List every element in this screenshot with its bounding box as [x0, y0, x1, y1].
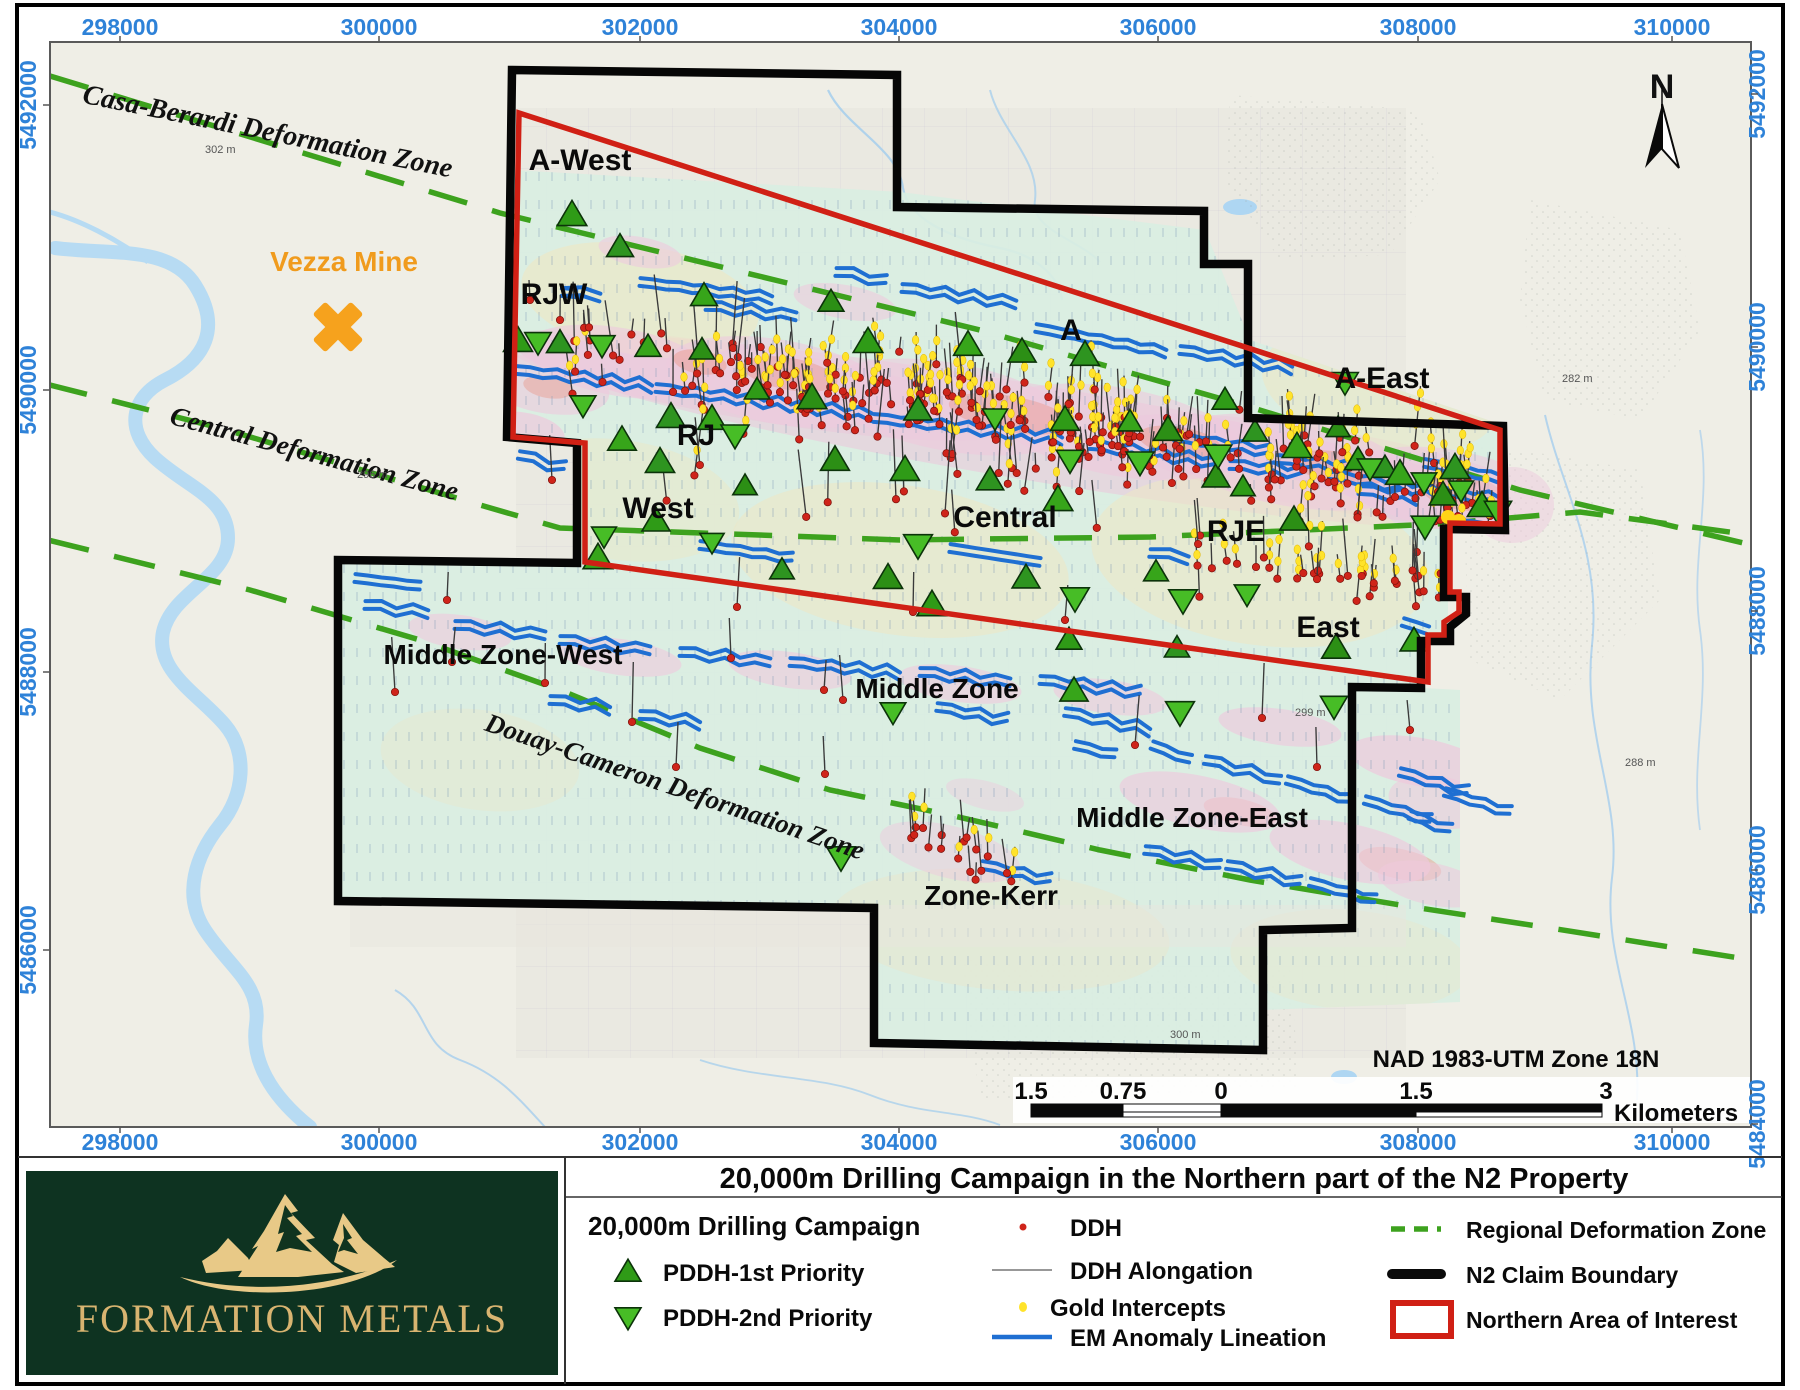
- svg-text:3: 3: [1599, 1078, 1612, 1105]
- svg-text:Zone-Kerr: Zone-Kerr: [924, 880, 1058, 911]
- svg-text:302 m: 302 m: [205, 144, 236, 156]
- svg-text:Northern Area of Interest: Northern Area of Interest: [1466, 1307, 1738, 1333]
- svg-text:5488000: 5488000: [15, 627, 41, 717]
- svg-text:PDDH-2nd Priority: PDDH-2nd Priority: [663, 1305, 873, 1332]
- svg-text:RJ: RJ: [677, 419, 715, 452]
- svg-text:West: West: [622, 492, 693, 525]
- svg-text:296 m: 296 m: [357, 469, 388, 481]
- svg-text:A-West: A-West: [529, 144, 632, 177]
- svg-text:PDDH-1st Priority: PDDH-1st Priority: [663, 1260, 865, 1287]
- svg-text:1.5: 1.5: [1399, 1078, 1432, 1105]
- svg-text:Middle Zone-East: Middle Zone-East: [1076, 802, 1308, 833]
- svg-text:0.75: 0.75: [1100, 1078, 1147, 1105]
- svg-text:Kilometers: Kilometers: [1614, 1100, 1738, 1127]
- svg-text:Middle Zone: Middle Zone: [855, 673, 1018, 704]
- svg-text:A: A: [1060, 314, 1082, 347]
- svg-text:DDH Alongation: DDH Alongation: [1070, 1258, 1253, 1285]
- svg-text:FORMATION METALS: FORMATION METALS: [76, 1296, 508, 1341]
- svg-text:Middle Zone-West: Middle Zone-West: [383, 639, 622, 670]
- svg-text:Central: Central: [953, 501, 1056, 534]
- svg-text:282 m: 282 m: [1562, 373, 1593, 385]
- svg-text:NAD 1983-UTM Zone 18N: NAD 1983-UTM Zone 18N: [1373, 1046, 1660, 1073]
- svg-text:20,000m Drilling Campaign: 20,000m Drilling Campaign: [588, 1211, 920, 1241]
- svg-text:20,000m Drilling Campaign in t: 20,000m Drilling Campaign in the Norther…: [720, 1163, 1629, 1195]
- svg-text:DDH: DDH: [1070, 1215, 1122, 1242]
- svg-text:5492000: 5492000: [15, 60, 41, 150]
- svg-text:N2 Claim Boundary: N2 Claim Boundary: [1466, 1262, 1678, 1288]
- svg-text:288 m: 288 m: [1625, 757, 1656, 769]
- svg-text:Vezza Mine: Vezza Mine: [270, 246, 418, 277]
- svg-text:East: East: [1296, 611, 1359, 644]
- svg-text:RJW: RJW: [521, 278, 588, 311]
- svg-text:299 m: 299 m: [1295, 707, 1326, 719]
- svg-text:5486000: 5486000: [15, 905, 41, 995]
- svg-text:A-East: A-East: [1334, 362, 1429, 395]
- svg-text:Gold Intercepts: Gold Intercepts: [1050, 1295, 1226, 1322]
- svg-text:EM Anomaly Lineation: EM Anomaly Lineation: [1070, 1325, 1326, 1352]
- svg-text:5490000: 5490000: [15, 345, 41, 435]
- svg-text:0: 0: [1214, 1078, 1227, 1105]
- svg-text:Regional Deformation Zone: Regional Deformation Zone: [1466, 1217, 1766, 1243]
- svg-text:1.5: 1.5: [1014, 1078, 1047, 1105]
- svg-text:RJE: RJE: [1207, 515, 1265, 548]
- svg-text:300 m: 300 m: [1170, 1029, 1201, 1041]
